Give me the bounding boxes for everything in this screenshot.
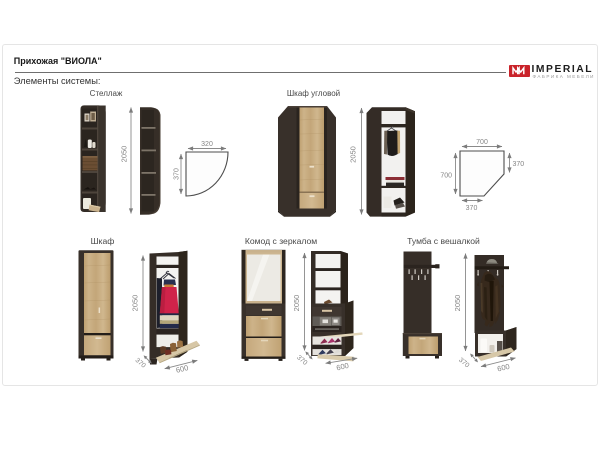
svg-text:2050: 2050 — [119, 146, 128, 163]
svg-text:600: 600 — [496, 362, 510, 374]
svg-text:370: 370 — [295, 354, 308, 367]
svg-text:600: 600 — [335, 361, 349, 373]
svg-text:600: 600 — [175, 363, 189, 375]
svg-text:700: 700 — [476, 139, 488, 146]
svg-text:370: 370 — [513, 161, 525, 168]
svg-text:700: 700 — [440, 173, 452, 180]
svg-text:370: 370 — [174, 168, 181, 180]
svg-text:2050: 2050 — [292, 295, 301, 312]
svg-text:2050: 2050 — [349, 146, 358, 163]
svg-text:2050: 2050 — [131, 295, 140, 312]
svg-text:320: 320 — [201, 141, 213, 148]
svg-text:370: 370 — [457, 357, 470, 370]
svg-text:2050: 2050 — [453, 295, 462, 312]
svg-text:370: 370 — [466, 205, 478, 212]
